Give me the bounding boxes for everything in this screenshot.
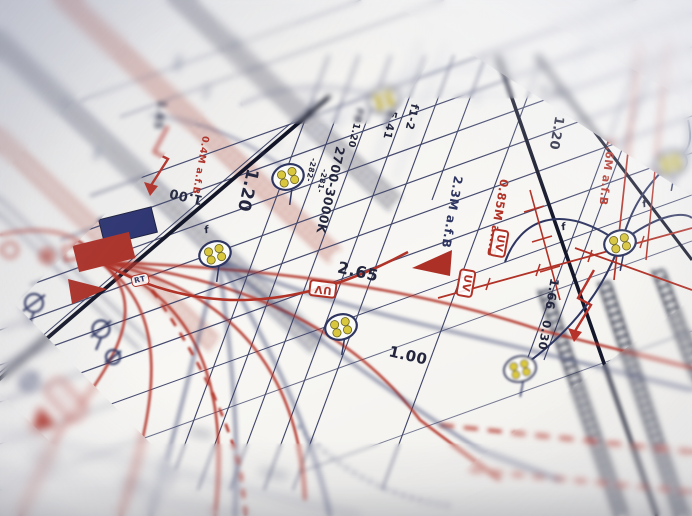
red-terminal-icons — [3, 243, 84, 264]
cable-section-icon — [196, 237, 239, 284]
cable-section-icon — [322, 311, 364, 358]
rail-lines — [0, 55, 692, 516]
cable-section-icon — [652, 147, 692, 193]
red-arrow-center — [412, 250, 452, 276]
uv-fixture-badge: UV — [308, 279, 338, 299]
blueprint-photo: 1.20 2700-3000K 2.65 FB1.20 5.41 f1-2 -2… — [0, 0, 692, 516]
circle-slash-icons — [20, 294, 121, 389]
ladder-band-group — [440, 270, 692, 516]
